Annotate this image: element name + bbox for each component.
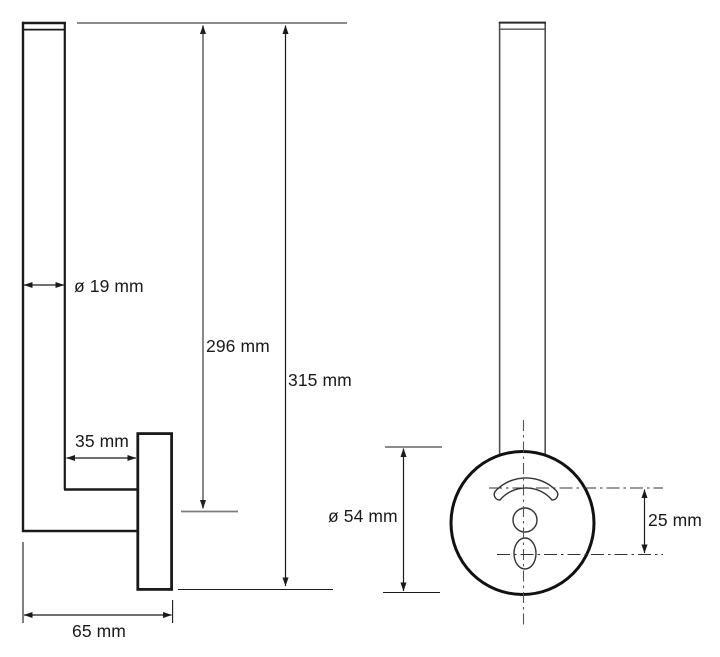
label-tube-diameter: ø 19 mm (74, 276, 144, 296)
dimension-overall-height (178, 26, 333, 590)
front-view (383, 22, 663, 628)
dimension-height-to-arm (181, 26, 238, 512)
label-plate-diameter: ø 54 mm (328, 506, 398, 526)
technical-drawing-canvas (0, 0, 720, 657)
technical-drawing-page: ø 19 mm 296 mm 315 mm 35 mm 65 mm ø 54 m… (0, 0, 720, 657)
tube-front-outline (499, 22, 546, 457)
label-overall-height: 315 mm (288, 370, 352, 390)
label-hole-spacing: 25 mm (648, 510, 702, 530)
wall-plate-side (138, 434, 172, 590)
side-view (22, 22, 347, 623)
wall-plate-front (451, 452, 594, 595)
label-arm-offset: 35 mm (75, 431, 129, 451)
label-overall-depth: 65 mm (72, 621, 126, 641)
label-height-to-arm: 296 mm (206, 336, 270, 356)
